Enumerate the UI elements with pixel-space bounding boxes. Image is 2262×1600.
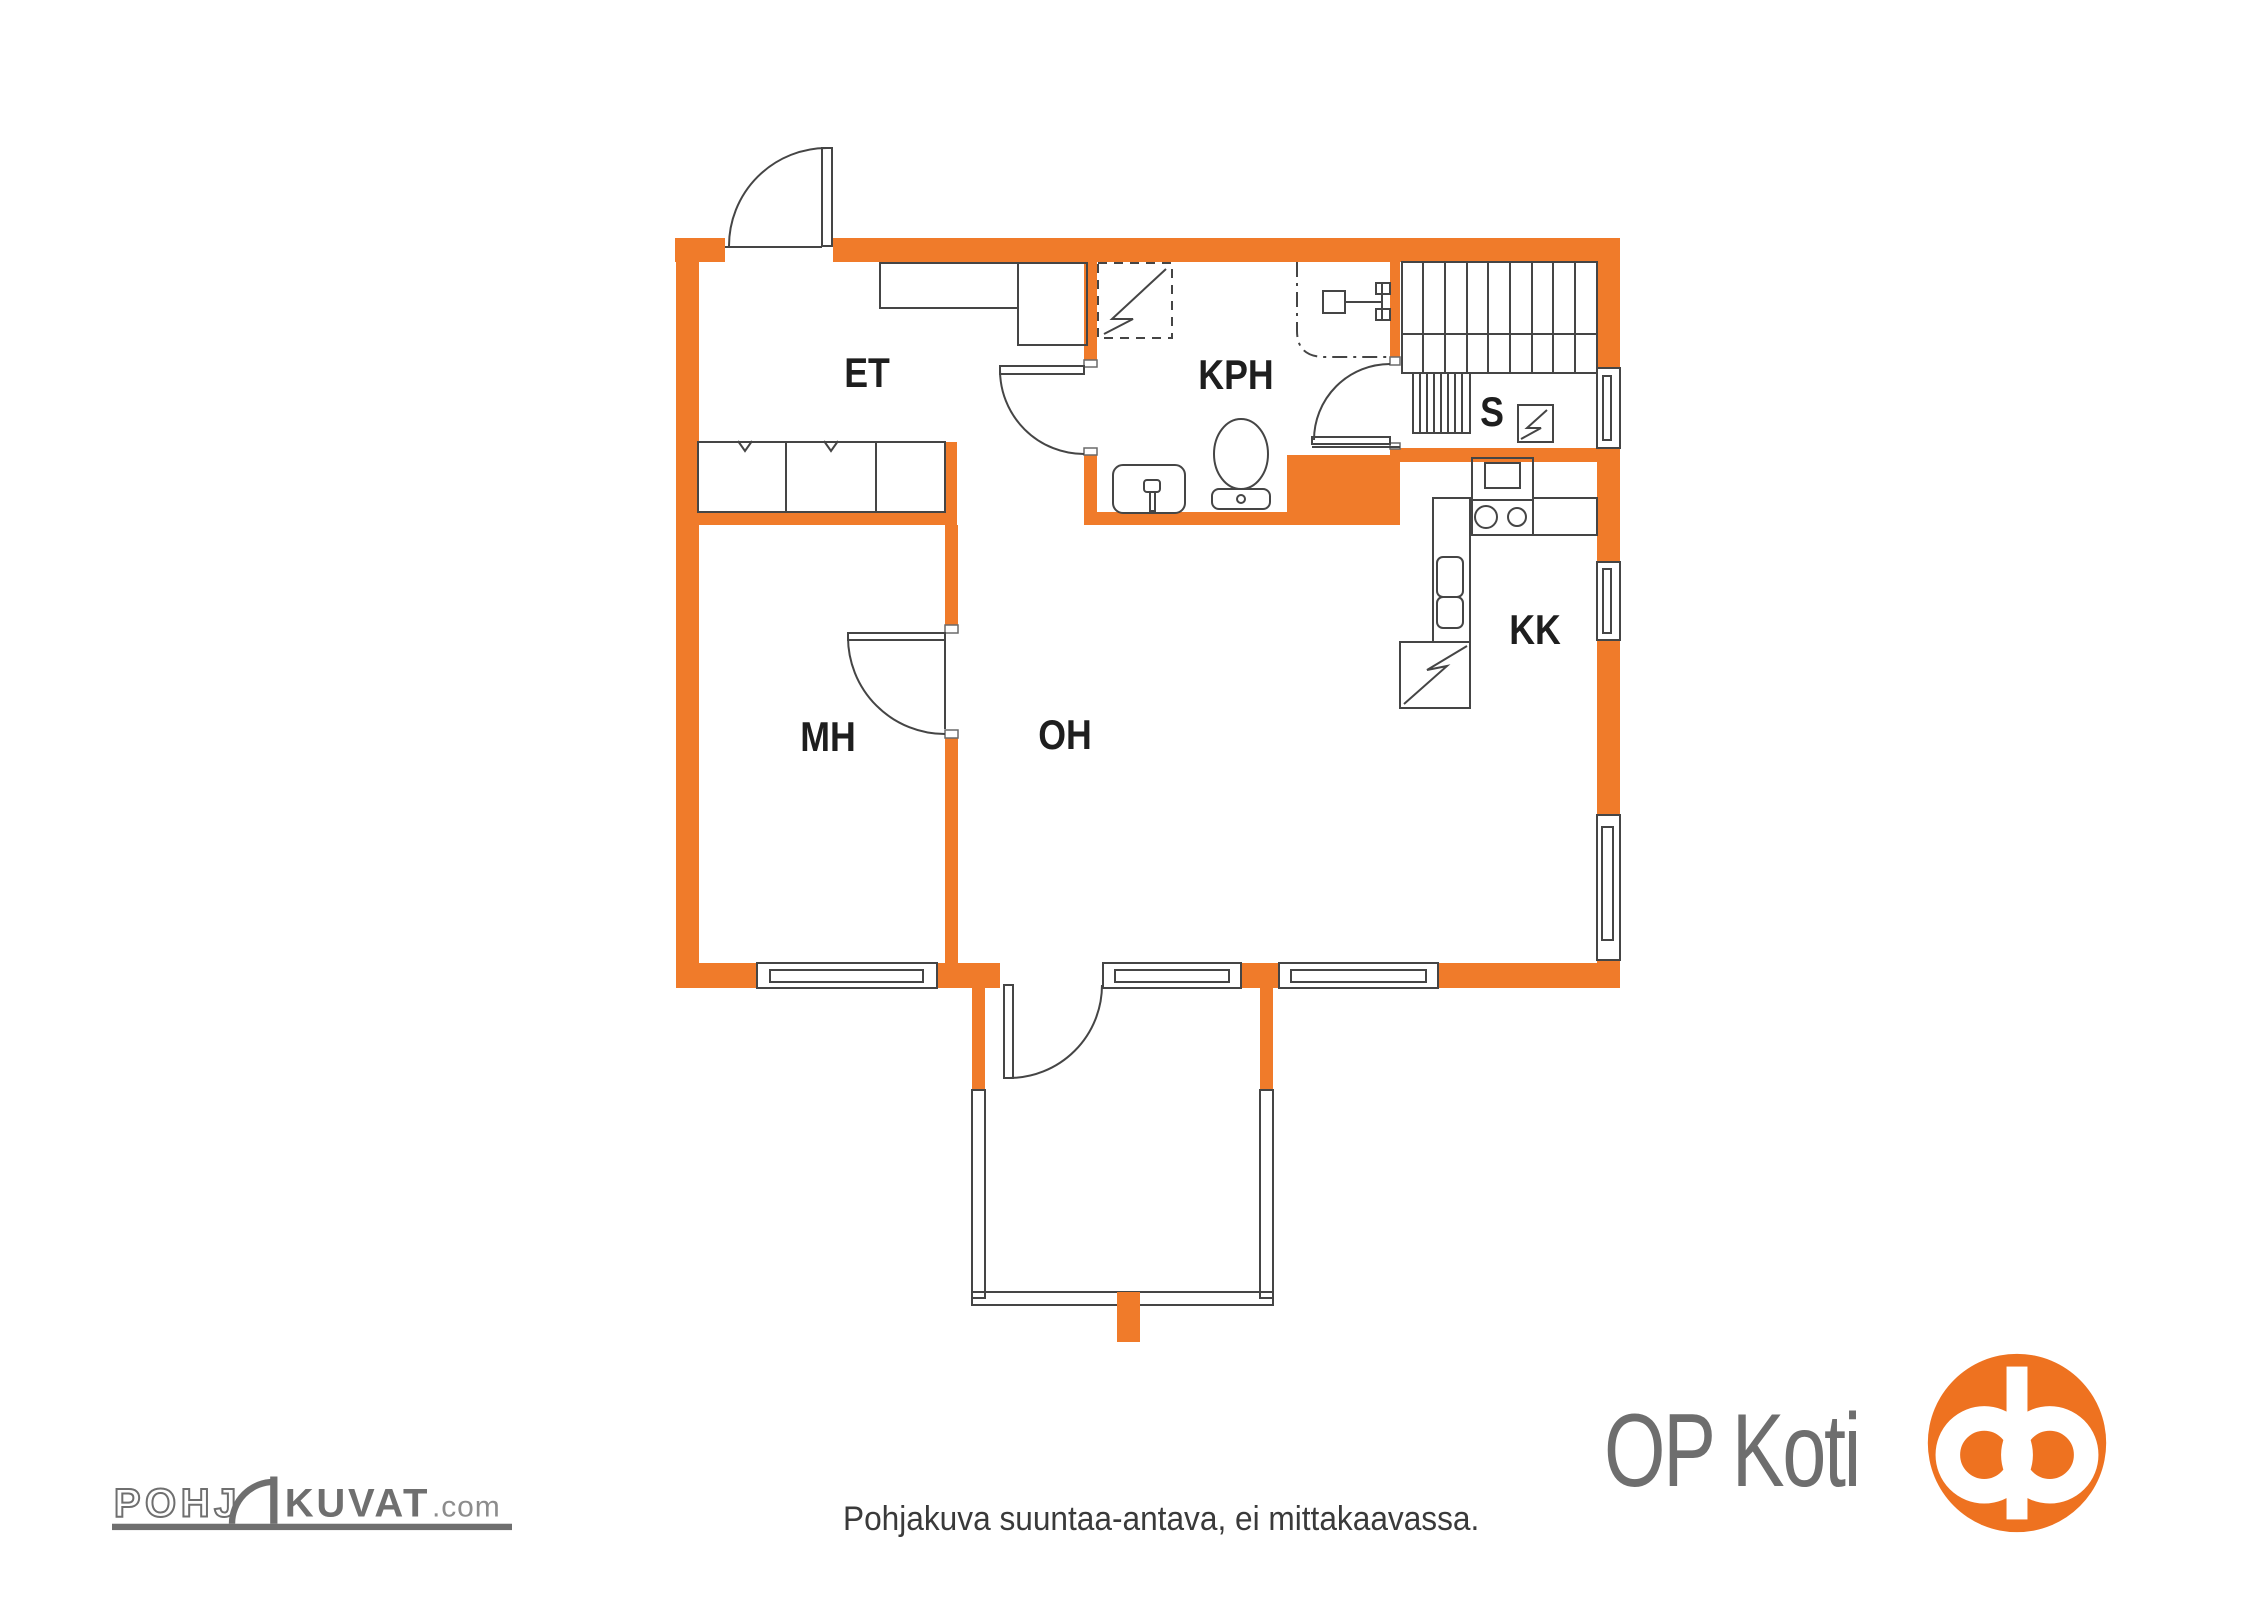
floor-plan-drawing bbox=[0, 0, 2262, 1600]
op-koti-wordmark: OP Koti bbox=[1604, 1392, 1859, 1511]
shower-icon bbox=[1098, 263, 1172, 338]
balcony-door bbox=[1004, 985, 1102, 1078]
room-label-mh: MH bbox=[800, 713, 856, 761]
fridge-icon bbox=[1400, 642, 1470, 708]
front-door bbox=[725, 148, 832, 247]
floor-plan: ET KPH S KK MH OH bbox=[0, 0, 2262, 1600]
room-label-s: S bbox=[1480, 388, 1504, 436]
hall-shelf bbox=[880, 263, 1087, 345]
op-logo-icon bbox=[1926, 1352, 2108, 1534]
pohjakuvat-logo-outline-text: POHJ bbox=[114, 1481, 241, 1525]
toilet-icon bbox=[1212, 419, 1270, 509]
sauna-stove-icon bbox=[1518, 405, 1553, 442]
bathroom-sink-icon bbox=[1113, 465, 1185, 513]
disclaimer-text: Pohjakuva suuntaa-antava, ei mittakaavas… bbox=[843, 1500, 1479, 1539]
room-label-oh: OH bbox=[1038, 711, 1092, 759]
washing-machine-reservation bbox=[1297, 262, 1390, 357]
bathroom-door bbox=[1000, 366, 1084, 454]
room-label-kk: KK bbox=[1509, 606, 1561, 654]
pohjakuvat-logo: POHJ KUVAT .com bbox=[112, 1462, 512, 1540]
pohjakuvat-logo-solid-text: KUVAT bbox=[285, 1481, 430, 1525]
pohjakuvat-logo-suffix: .com bbox=[432, 1490, 501, 1523]
wardrobe bbox=[698, 441, 945, 512]
bedroom-door bbox=[848, 633, 945, 734]
landing-door bbox=[1312, 364, 1400, 447]
pohjakuvat-logo-underline bbox=[112, 1524, 512, 1530]
room-label-kph: KPH bbox=[1198, 351, 1273, 399]
balcony-railing bbox=[972, 1090, 1273, 1342]
room-label-et: ET bbox=[844, 349, 890, 397]
